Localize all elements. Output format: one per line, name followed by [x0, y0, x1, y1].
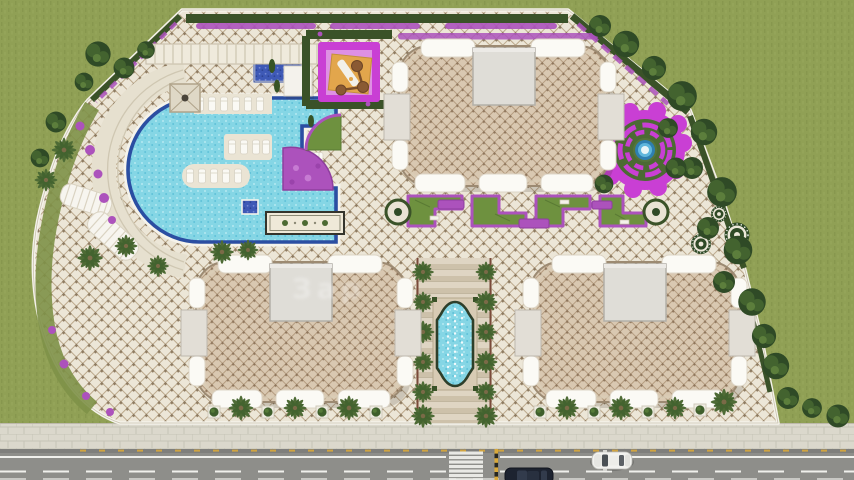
fountain-promenade	[411, 258, 498, 428]
watermark: Зар	[292, 272, 366, 305]
site-plan-svg: Зар	[0, 0, 854, 480]
ornamental-carpet	[266, 212, 344, 234]
jacuzzi	[242, 200, 258, 214]
building-north	[384, 39, 624, 192]
car-dark	[505, 468, 553, 480]
car-white	[590, 450, 634, 471]
sidewalk	[0, 423, 854, 450]
street	[0, 423, 854, 480]
site-plan-stage: Зар	[0, 0, 854, 480]
yellow-black-line	[495, 449, 499, 480]
road	[0, 449, 854, 480]
central-fountain	[432, 297, 478, 391]
gazebo	[170, 84, 200, 112]
